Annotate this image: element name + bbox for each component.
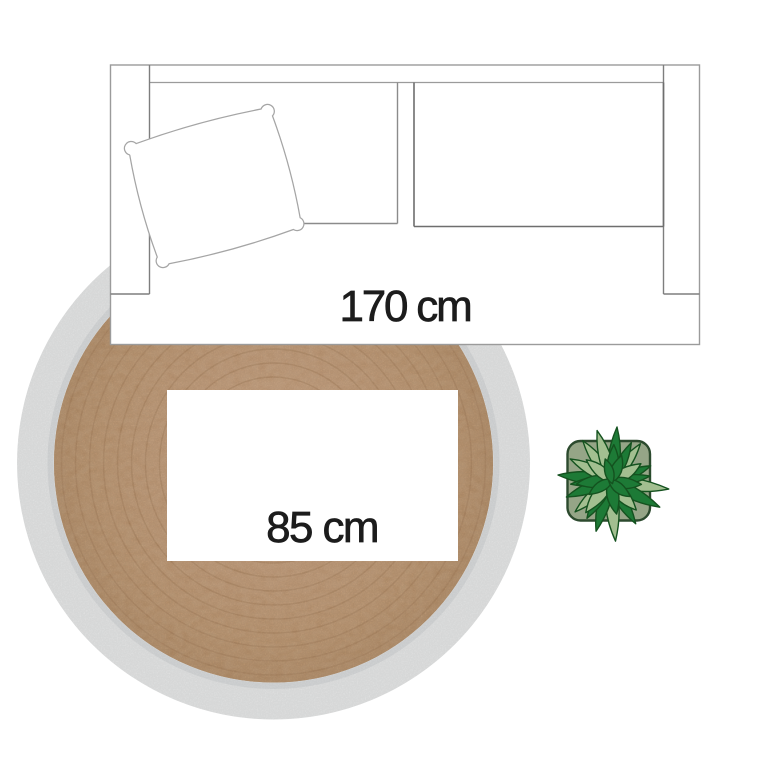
svg-text:85 cm: 85 cm [266,503,378,552]
svg-text:170 cm: 170 cm [339,282,470,331]
